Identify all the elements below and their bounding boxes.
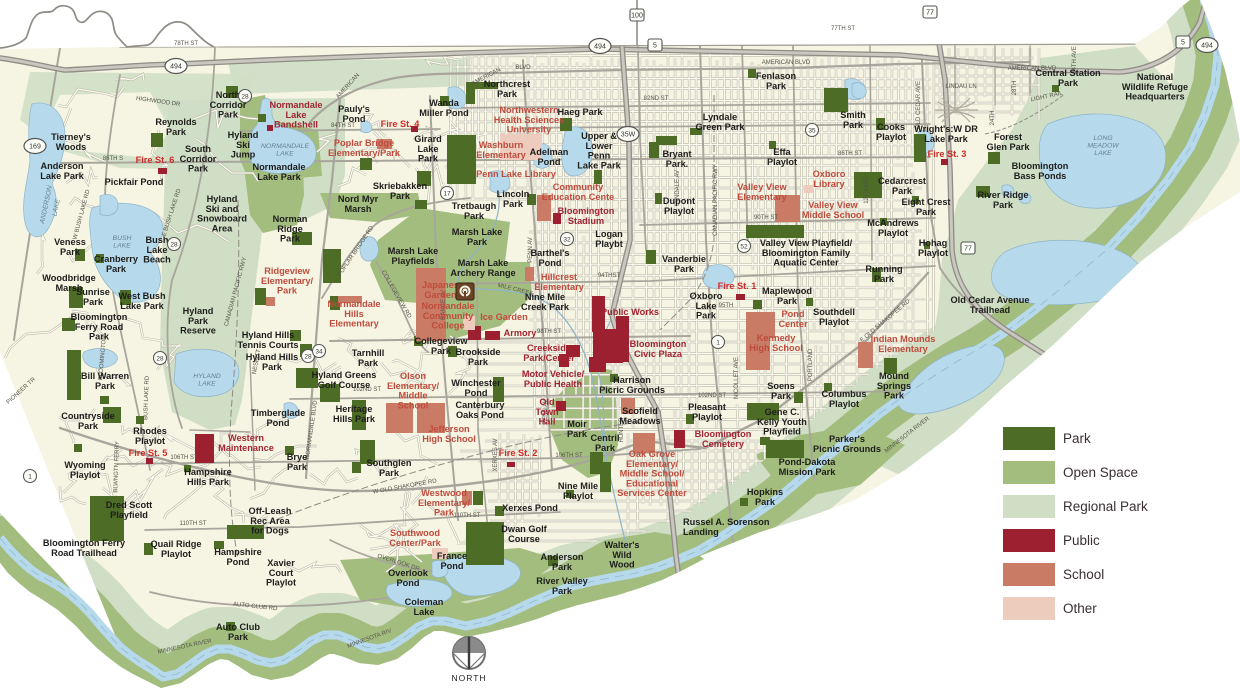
svg-text:CanterburyOaks Pond: CanterburyOaks Pond bbox=[455, 400, 505, 420]
svg-text:94THST: 94THST bbox=[598, 273, 621, 279]
svg-text:1: 1 bbox=[716, 339, 720, 346]
svg-text:Motor Vehicle/Public Health: Motor Vehicle/Public Health bbox=[522, 369, 585, 389]
svg-text:Pond-DakotaMission Park: Pond-DakotaMission Park bbox=[779, 457, 837, 477]
svg-text:Fire St. 4: Fire St. 4 bbox=[381, 119, 421, 129]
svg-text:OLD CEDAR AVE: OLD CEDAR AVE bbox=[916, 81, 922, 129]
svg-text:PleasantPlaylot: PleasantPlaylot bbox=[688, 402, 726, 422]
svg-text:Open Space: Open Space bbox=[1063, 465, 1138, 480]
svg-text:106TH ST: 106TH ST bbox=[170, 455, 198, 461]
svg-text:West BushLake Park: West BushLake Park bbox=[118, 291, 166, 311]
svg-text:Bloomington FerryRoad Trailhea: Bloomington FerryRoad Trailhead bbox=[43, 538, 126, 558]
svg-text:28TH: 28TH bbox=[1012, 81, 1018, 96]
svg-text:NormandaleLake Park: NormandaleLake Park bbox=[252, 162, 305, 182]
svg-text:Haeg Park: Haeg Park bbox=[558, 107, 604, 117]
svg-text:CreeksidePark/Center: CreeksidePark/Center bbox=[523, 343, 575, 363]
svg-text:Valley ViewMiddle School: Valley ViewMiddle School bbox=[802, 200, 864, 220]
svg-text:Fire St. 2: Fire St. 2 bbox=[499, 448, 538, 458]
svg-text:LINDAU LN: LINDAU LN bbox=[945, 84, 976, 90]
svg-text:BLVD: BLVD bbox=[515, 65, 531, 71]
svg-text:5: 5 bbox=[653, 43, 657, 50]
svg-text:BushLakeBeach: BushLakeBeach bbox=[143, 235, 171, 265]
svg-text:Fire St. 3: Fire St. 3 bbox=[928, 149, 967, 159]
svg-text:CANADIAN PACIFIC RWY: CANADIAN PACIFIC RWY bbox=[713, 164, 719, 235]
svg-text:86TH ST: 86TH ST bbox=[838, 151, 862, 157]
svg-text:BloomingtonBass Ponds: BloomingtonBass Ponds bbox=[1012, 161, 1069, 181]
svg-text:JeffersonHigh School: JeffersonHigh School bbox=[422, 424, 476, 444]
svg-text:28: 28 bbox=[156, 355, 164, 362]
svg-text:77: 77 bbox=[964, 246, 972, 253]
svg-text:WyomingPlaylot: WyomingPlaylot bbox=[64, 460, 105, 480]
svg-text:Fire St. 1: Fire St. 1 bbox=[718, 281, 757, 291]
svg-text:HohagPlaylot: HohagPlaylot bbox=[918, 238, 948, 258]
svg-text:Marsh LakePlayfields: Marsh LakePlayfields bbox=[388, 246, 439, 266]
svg-text:Public: Public bbox=[1063, 533, 1100, 548]
svg-text:Pickfair Pond: Pickfair Pond bbox=[105, 177, 164, 187]
svg-text:110TH ST: 110TH ST bbox=[454, 513, 481, 519]
svg-text:106TH ST: 106TH ST bbox=[555, 453, 583, 459]
svg-text:Nine MileCreek Park: Nine MileCreek Park bbox=[521, 292, 570, 312]
svg-text:84TH ST: 84TH ST bbox=[331, 123, 355, 129]
svg-text:90TH ST: 90TH ST bbox=[754, 215, 778, 221]
svg-text:17: 17 bbox=[443, 190, 451, 197]
svg-text:28: 28 bbox=[241, 93, 249, 100]
svg-text:ScofieldMeadows: ScofieldMeadows bbox=[619, 406, 660, 426]
svg-text:Regional Park: Regional Park bbox=[1063, 499, 1148, 514]
svg-text:169: 169 bbox=[29, 144, 41, 151]
svg-text:110TH ST: 110TH ST bbox=[180, 521, 207, 527]
svg-text:35W: 35W bbox=[621, 132, 636, 139]
svg-text:52: 52 bbox=[740, 243, 748, 250]
svg-text:28: 28 bbox=[304, 353, 312, 360]
svg-text:AMERICAN BLVD: AMERICAN BLVD bbox=[762, 60, 811, 66]
svg-text:Indian MoundsElementary: Indian MoundsElementary bbox=[871, 334, 936, 354]
svg-text:HillcrestElementary: HillcrestElementary bbox=[534, 272, 584, 292]
svg-text:Armory: Armory bbox=[504, 328, 538, 338]
svg-text:Xerxes Pond: Xerxes Pond bbox=[502, 503, 558, 513]
svg-text:RhodesPlaylot: RhodesPlaylot bbox=[133, 426, 167, 446]
svg-text:CooksPlaylot: CooksPlaylot bbox=[876, 122, 906, 142]
svg-text:494: 494 bbox=[170, 64, 182, 71]
svg-text:Hyland GreensGolf Course: Hyland GreensGolf Course bbox=[312, 370, 377, 390]
svg-text:1: 1 bbox=[28, 473, 32, 480]
svg-text:SouthwoodCenter/Park: SouthwoodCenter/Park bbox=[389, 528, 441, 548]
svg-text:Other: Other bbox=[1063, 601, 1097, 616]
svg-text:24TH: 24TH bbox=[990, 111, 996, 126]
svg-text:WashburnElementary: WashburnElementary bbox=[476, 140, 526, 160]
svg-text:FrancePond: FrancePond bbox=[437, 551, 467, 571]
svg-text:Marsh LakeArchery Range: Marsh LakeArchery Range bbox=[450, 258, 515, 278]
svg-text:Tierney'sWoods: Tierney'sWoods bbox=[51, 132, 91, 152]
svg-text:77: 77 bbox=[926, 10, 934, 17]
svg-text:Valley View Playfield/Blooming: Valley View Playfield/Bloomington Family… bbox=[760, 238, 853, 268]
svg-text:Dred ScottPlayfield: Dred ScottPlayfield bbox=[106, 500, 152, 520]
svg-text:BloomingtonCemetery: BloomingtonCemetery bbox=[695, 429, 752, 449]
svg-text:32: 32 bbox=[563, 236, 571, 243]
svg-text:35: 35 bbox=[808, 127, 816, 134]
svg-text:82ND ST: 82ND ST bbox=[644, 96, 669, 102]
svg-text:Nine MilePlaylot: Nine MilePlaylot bbox=[558, 481, 598, 501]
svg-text:Penn Lake Library: Penn Lake Library bbox=[476, 169, 557, 179]
svg-text:KennedyHigh School: KennedyHigh School bbox=[749, 333, 803, 353]
svg-text:12TH AVE: 12TH AVE bbox=[864, 176, 870, 204]
svg-text:LoganPlaybt: LoganPlaybt bbox=[595, 229, 623, 249]
svg-text:XavierCourtPlaylot: XavierCourtPlaylot bbox=[266, 558, 296, 588]
svg-text:Pauly'sPond: Pauly'sPond bbox=[338, 104, 370, 124]
svg-text:494: 494 bbox=[594, 44, 606, 51]
svg-text:BryantPark.: BryantPark. bbox=[662, 149, 691, 169]
svg-text:Fire St. 6: Fire St. 6 bbox=[136, 155, 175, 165]
svg-text:MoirPark: MoirPark bbox=[567, 419, 588, 439]
svg-text:98TH ST: 98TH ST bbox=[537, 329, 561, 335]
svg-text:HampshireHills Park: HampshireHills Park bbox=[184, 467, 232, 487]
svg-text:Off-LeashRec Areafor Dogs: Off-LeashRec Areafor Dogs bbox=[249, 506, 292, 536]
svg-text:DupontPlaylot: DupontPlaylot bbox=[663, 196, 695, 216]
svg-text:BUSHLAKE: BUSHLAKE bbox=[113, 235, 132, 249]
svg-text:NICOLLET AVE: NICOLLET AVE bbox=[734, 357, 740, 399]
svg-text:494: 494 bbox=[1201, 43, 1213, 50]
svg-text:100: 100 bbox=[631, 13, 643, 20]
svg-text:Park: Park bbox=[1063, 431, 1091, 446]
svg-text:77TH ST: 77TH ST bbox=[831, 26, 855, 32]
svg-text:Public Works: Public Works bbox=[601, 307, 659, 317]
svg-text:5: 5 bbox=[1181, 40, 1185, 47]
svg-text:AndersonLake Park: AndersonLake Park bbox=[40, 161, 84, 181]
svg-text:PORTLAND: PORTLAND bbox=[808, 348, 814, 381]
svg-text:NORTH: NORTH bbox=[451, 673, 486, 683]
svg-text:SmithPark: SmithPark bbox=[840, 110, 866, 130]
svg-text:78TH ST: 78TH ST bbox=[174, 41, 198, 47]
svg-text:BloomingtonCivic Plaza: BloomingtonCivic Plaza bbox=[630, 339, 687, 359]
svg-text:86TH S: 86TH S bbox=[103, 156, 123, 162]
svg-text:BryePark: BryePark bbox=[287, 452, 308, 472]
svg-text:95TH: 95TH bbox=[719, 303, 734, 309]
svg-text:School: School bbox=[1063, 567, 1104, 582]
svg-text:SoensPark: SoensPark bbox=[767, 381, 795, 401]
svg-text:Hyland HillsTennis Courts: Hyland HillsTennis Courts bbox=[237, 330, 298, 350]
svg-text:Valley ViewElementary: Valley ViewElementary bbox=[737, 182, 787, 202]
svg-text:Ice Garden: Ice Garden bbox=[480, 312, 528, 322]
svg-text:PondCenter: PondCenter bbox=[778, 309, 808, 329]
svg-text:Fire St. 5: Fire St. 5 bbox=[129, 448, 168, 458]
svg-text:102ND ST: 102ND ST bbox=[698, 393, 726, 399]
svg-text:34: 34 bbox=[315, 348, 323, 355]
svg-text:OxboroLibrary: OxboroLibrary bbox=[813, 169, 846, 189]
svg-text:SouthdellPlaylot: SouthdellPlaylot bbox=[813, 307, 855, 327]
svg-text:HeritageHills Park: HeritageHills Park bbox=[333, 404, 376, 424]
svg-text:Poplar BridgeElementary/Park: Poplar BridgeElementary/Park bbox=[328, 138, 401, 158]
svg-text:28: 28 bbox=[170, 241, 178, 248]
svg-text:GirardLakePark: GirardLakePark bbox=[414, 134, 442, 164]
